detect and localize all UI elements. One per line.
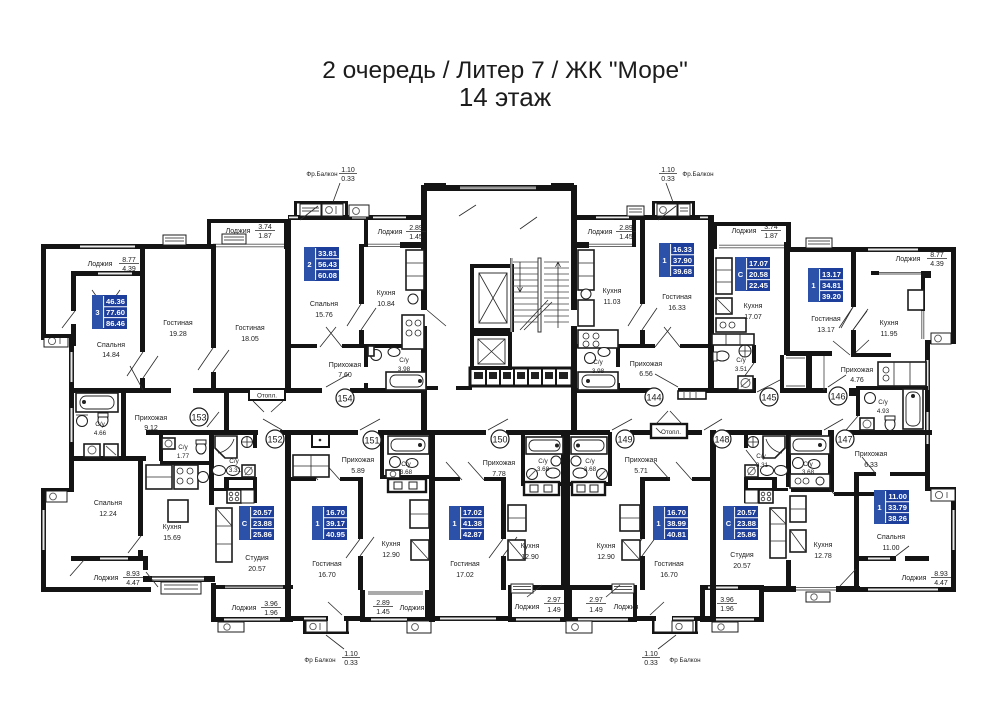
svg-text:4.47: 4.47 [126, 580, 140, 587]
svg-text:Прихожая: Прихожая [135, 415, 168, 422]
svg-text:2.89: 2.89 [619, 225, 633, 232]
svg-text:11.03: 11.03 [604, 299, 621, 306]
svg-text:1.10: 1.10 [344, 651, 358, 658]
svg-text:Лоджия: Лоджия [732, 228, 757, 235]
svg-text:Лоджия: Лоджия [588, 229, 613, 236]
svg-text:Гостиная: Гостиная [235, 325, 265, 332]
svg-text:Прихожая: Прихожая [329, 362, 362, 369]
svg-text:1.45: 1.45 [376, 609, 390, 616]
svg-text:С/у: С/у [178, 444, 188, 451]
svg-text:Отопл.: Отопл. [257, 393, 277, 400]
svg-text:8.93: 8.93 [126, 571, 140, 578]
svg-text:16.70: 16.70 [660, 572, 678, 579]
svg-text:Спальня: Спальня [877, 534, 905, 541]
svg-text:20.57: 20.57 [733, 563, 751, 570]
svg-text:Кухня: Кухня [744, 303, 763, 310]
svg-text:5.71: 5.71 [634, 468, 648, 475]
svg-text:3.74: 3.74 [258, 224, 272, 231]
svg-text:3.98: 3.98 [592, 368, 605, 375]
svg-text:Гостиная: Гостиная [811, 316, 841, 323]
svg-text:14.84: 14.84 [102, 352, 120, 359]
svg-text:22.45: 22.45 [749, 281, 769, 290]
svg-text:56.43: 56.43 [318, 260, 337, 269]
svg-text:3.96: 3.96 [720, 597, 734, 604]
svg-text:3.74: 3.74 [764, 224, 778, 231]
svg-text:10.84: 10.84 [377, 301, 395, 308]
svg-text:19.28: 19.28 [169, 331, 187, 338]
svg-text:Кухня: Кухня [382, 541, 401, 548]
svg-text:11.00: 11.00 [883, 545, 900, 552]
svg-text:86.46: 86.46 [106, 319, 125, 328]
svg-text:16.33: 16.33 [668, 305, 686, 312]
svg-text:Студия: Студия [730, 552, 754, 559]
svg-text:9.12: 9.12 [144, 425, 158, 432]
svg-text:46.36: 46.36 [106, 297, 125, 306]
svg-text:Кухня: Кухня [377, 290, 396, 297]
svg-text:12.90: 12.90 [382, 552, 400, 559]
svg-text:С/у: С/у [538, 458, 548, 465]
svg-text:147: 147 [837, 435, 852, 445]
svg-text:38.99: 38.99 [667, 519, 686, 528]
svg-text:Студия: Студия [245, 555, 269, 562]
svg-text:150: 150 [492, 435, 507, 445]
svg-text:0.33: 0.33 [644, 660, 658, 667]
svg-text:8.77: 8.77 [122, 257, 136, 264]
svg-text:3.96: 3.96 [264, 601, 278, 608]
svg-text:Гостиная: Гостиная [654, 561, 684, 568]
svg-text:3.68: 3.68 [537, 466, 550, 473]
svg-text:1.77: 1.77 [177, 453, 190, 460]
svg-text:С: С [738, 270, 744, 279]
svg-text:3: 3 [95, 308, 99, 317]
svg-text:1.96: 1.96 [720, 606, 734, 613]
svg-text:3.51: 3.51 [735, 366, 748, 373]
svg-text:3.98: 3.98 [398, 366, 411, 373]
svg-text:Прихожая: Прихожая [841, 367, 874, 374]
svg-text:13.17: 13.17 [817, 327, 835, 334]
svg-text:11.95: 11.95 [881, 331, 898, 338]
svg-text:3.68: 3.68 [802, 469, 815, 476]
svg-text:12.78: 12.78 [814, 553, 832, 560]
svg-text:5.89: 5.89 [351, 468, 365, 475]
svg-text:3.68: 3.68 [584, 466, 597, 473]
svg-text:151: 151 [364, 436, 379, 446]
svg-text:Лоджия: Лоджия [515, 604, 540, 611]
svg-text:1.10: 1.10 [644, 651, 658, 658]
svg-text:С: С [726, 519, 732, 528]
svg-text:23.88: 23.88 [253, 519, 272, 528]
svg-text:12.90: 12.90 [597, 554, 615, 561]
svg-text:1.96: 1.96 [264, 610, 278, 617]
svg-text:4.76: 4.76 [850, 377, 864, 384]
svg-text:Фр Балкон: Фр Балкон [304, 657, 336, 664]
svg-text:1.49: 1.49 [589, 607, 603, 614]
svg-text:Лоджия: Лоджия [378, 229, 403, 236]
svg-text:Лоджия: Лоджия [896, 256, 921, 263]
svg-text:Отопл.: Отопл. [661, 429, 681, 436]
svg-text:С/у: С/у [878, 399, 888, 406]
svg-text:Кухня: Кухня [597, 543, 616, 550]
svg-text:С/у: С/у [399, 357, 409, 364]
svg-text:8.93: 8.93 [934, 571, 948, 578]
svg-text:1.45: 1.45 [619, 234, 633, 241]
svg-text:С: С [242, 519, 248, 528]
svg-text:С/у: С/у [803, 461, 813, 468]
svg-text:Лоджия: Лоджия [94, 575, 119, 582]
svg-text:146: 146 [830, 392, 845, 402]
svg-text:11.00: 11.00 [888, 492, 907, 501]
svg-text:0.33: 0.33 [661, 176, 675, 183]
svg-text:6.56: 6.56 [639, 371, 653, 378]
svg-text:7.60: 7.60 [338, 372, 352, 379]
svg-text:Кухня: Кухня [814, 542, 833, 549]
svg-text:0.33: 0.33 [341, 176, 355, 183]
svg-text:Спальня: Спальня [94, 500, 122, 507]
svg-text:39.17: 39.17 [326, 519, 345, 528]
svg-text:14 этаж: 14 этаж [459, 82, 552, 112]
svg-text:16.70: 16.70 [667, 508, 686, 517]
svg-text:Фр.Балкон: Фр.Балкон [306, 171, 338, 178]
svg-text:17.07: 17.07 [749, 259, 768, 268]
svg-text:16.70: 16.70 [318, 572, 336, 579]
svg-text:17.02: 17.02 [456, 572, 474, 579]
svg-text:7.78: 7.78 [492, 471, 506, 478]
svg-text:42.87: 42.87 [463, 530, 482, 539]
svg-text:25.86: 25.86 [737, 530, 756, 539]
svg-text:20.57: 20.57 [248, 566, 266, 573]
svg-text:Прихожая: Прихожая [855, 451, 888, 458]
svg-text:39.68: 39.68 [673, 267, 692, 276]
svg-text:Фр Балкон: Фр Балкон [669, 657, 701, 664]
svg-text:6.33: 6.33 [864, 462, 878, 469]
svg-text:33.79: 33.79 [888, 503, 907, 512]
svg-text:4.66: 4.66 [94, 430, 107, 437]
svg-text:60.08: 60.08 [318, 271, 337, 280]
svg-text:17.02: 17.02 [463, 508, 482, 517]
svg-text:2 очередь / Литер 7 / ЖК "Море: 2 очередь / Литер 7 / ЖК "Море" [322, 57, 688, 84]
svg-text:Лоджия: Лоджия [902, 575, 927, 582]
svg-text:17.07: 17.07 [744, 314, 762, 321]
svg-text:Кухня: Кухня [603, 288, 622, 295]
svg-text:37.90: 37.90 [673, 256, 692, 265]
svg-text:145: 145 [761, 393, 776, 403]
svg-text:3.68: 3.68 [400, 469, 413, 476]
svg-text:4.39: 4.39 [122, 266, 136, 273]
svg-text:144: 144 [646, 393, 661, 403]
svg-text:С/у: С/у [95, 421, 105, 428]
svg-text:Кухня: Кухня [521, 543, 540, 550]
svg-text:Фр.Балкон: Фр.Балкон [682, 171, 714, 178]
svg-text:38.26: 38.26 [888, 514, 907, 523]
svg-text:2.97: 2.97 [547, 597, 561, 604]
svg-text:149: 149 [617, 435, 632, 445]
svg-text:148: 148 [714, 435, 729, 445]
svg-text:Лоджия: Лоджия [88, 261, 113, 268]
svg-text:С/у: С/у [585, 458, 595, 465]
svg-text:2: 2 [307, 260, 311, 269]
svg-text:40.95: 40.95 [326, 530, 346, 539]
svg-text:2.89: 2.89 [409, 225, 423, 232]
svg-text:20.57: 20.57 [737, 508, 756, 517]
svg-text:2.89: 2.89 [376, 600, 390, 607]
svg-text:12.24: 12.24 [99, 511, 117, 518]
svg-text:Гостиная: Гостиная [662, 294, 692, 301]
svg-text:Гостиная: Гостиная [312, 561, 342, 568]
svg-text:С/у: С/у [593, 359, 603, 366]
svg-text:Кухня: Кухня [880, 320, 899, 327]
svg-text:Лоджия: Лоджия [614, 604, 639, 611]
svg-text:4.93: 4.93 [877, 408, 890, 415]
svg-text:Лоджия: Лоджия [400, 605, 425, 612]
svg-text:0.33: 0.33 [344, 660, 358, 667]
svg-text:Гостиная: Гостиная [163, 320, 193, 327]
svg-text:С/у: С/у [229, 458, 239, 465]
svg-text:18.05: 18.05 [241, 336, 259, 343]
svg-text:С/у: С/у [736, 357, 746, 364]
svg-text:1.45: 1.45 [409, 234, 423, 241]
svg-text:77.60: 77.60 [106, 308, 125, 317]
svg-text:153: 153 [191, 413, 206, 423]
svg-text:16.33: 16.33 [673, 245, 692, 254]
svg-text:15.76: 15.76 [315, 312, 333, 319]
svg-text:Прихожая: Прихожая [625, 457, 658, 464]
svg-text:Прихожая: Прихожая [483, 460, 516, 467]
svg-text:3.31: 3.31 [756, 462, 769, 469]
svg-text:1.10: 1.10 [661, 167, 675, 174]
svg-text:Прихожая: Прихожая [342, 457, 375, 464]
svg-text:23.88: 23.88 [737, 519, 756, 528]
svg-text:16.70: 16.70 [326, 508, 345, 517]
svg-text:1.49: 1.49 [547, 607, 561, 614]
svg-text:12.90: 12.90 [521, 554, 539, 561]
svg-text:40.81: 40.81 [667, 530, 687, 539]
svg-text:13.17: 13.17 [822, 270, 841, 279]
svg-text:20.57: 20.57 [253, 508, 272, 517]
svg-text:1.10: 1.10 [341, 167, 355, 174]
svg-text:20.58: 20.58 [749, 270, 768, 279]
svg-text:39.20: 39.20 [822, 292, 841, 301]
svg-text:41.38: 41.38 [463, 519, 482, 528]
svg-text:152: 152 [267, 435, 282, 445]
svg-text:2.97: 2.97 [589, 597, 603, 604]
svg-text:Спальня: Спальня [97, 342, 125, 349]
svg-text:4.47: 4.47 [934, 580, 948, 587]
svg-text:Лоджия: Лоджия [226, 228, 251, 235]
svg-text:Гостиная: Гостиная [450, 561, 480, 568]
svg-text:С/у: С/у [401, 461, 411, 468]
svg-text:1.87: 1.87 [764, 233, 778, 240]
svg-text:154: 154 [337, 394, 352, 404]
svg-text:Кухня: Кухня [163, 524, 182, 531]
svg-text:33.81: 33.81 [318, 249, 338, 258]
svg-text:1.87: 1.87 [258, 233, 272, 240]
svg-text:34.81: 34.81 [822, 281, 842, 290]
svg-text:3.31: 3.31 [229, 467, 242, 474]
svg-text:Спальня: Спальня [310, 301, 338, 308]
svg-text:Лоджия: Лоджия [232, 605, 257, 612]
svg-text:15.69: 15.69 [163, 535, 181, 542]
svg-text:С/у: С/у [756, 453, 766, 460]
svg-text:8.77: 8.77 [930, 252, 944, 259]
svg-text:25.86: 25.86 [253, 530, 272, 539]
svg-text:Прихожая: Прихожая [630, 361, 663, 368]
svg-text:4.39: 4.39 [930, 261, 944, 268]
